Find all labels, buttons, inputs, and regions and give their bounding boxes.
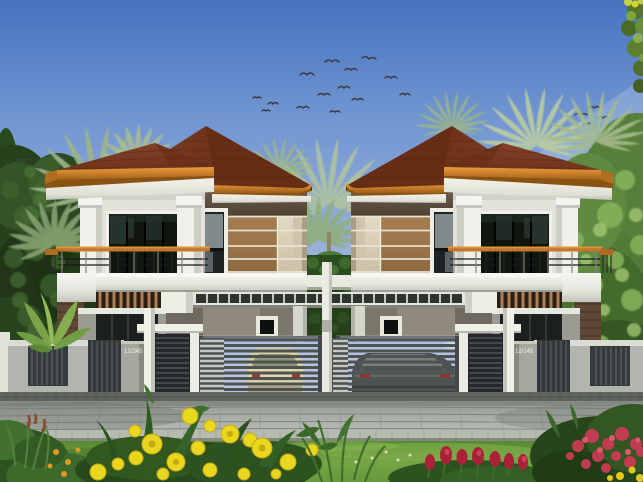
svg-text:12/345: 12/345 bbox=[124, 349, 143, 355]
svg-text:12/245: 12/245 bbox=[515, 349, 534, 355]
